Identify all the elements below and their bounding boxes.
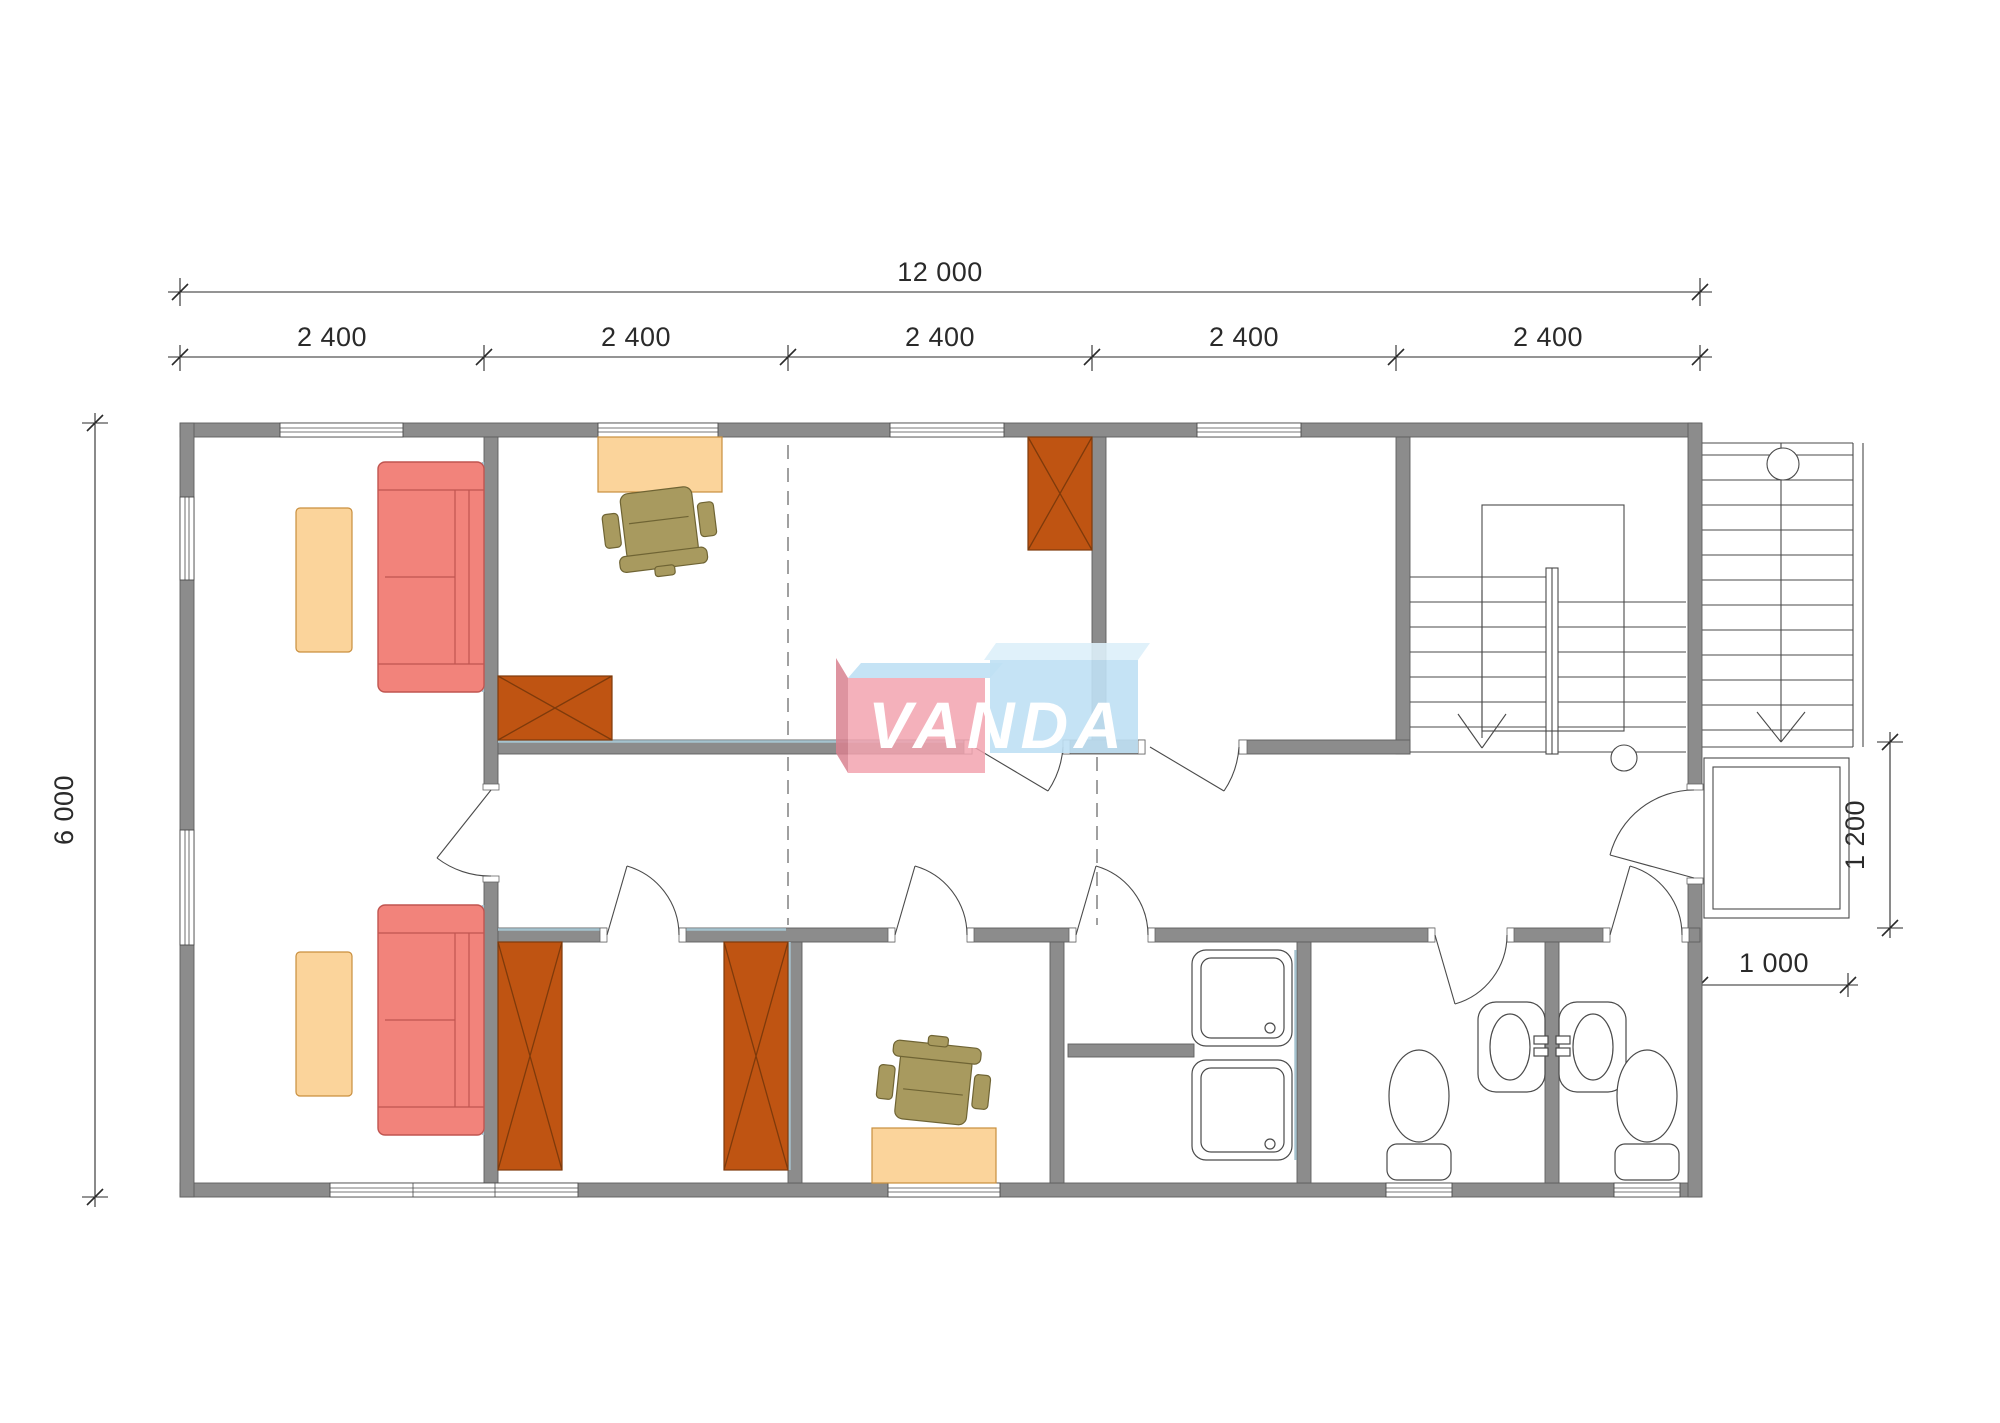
- wardrobe-office-right: [1028, 437, 1092, 550]
- sofa-lower: [378, 905, 484, 1135]
- stair-post-circle: [1767, 448, 1799, 480]
- wardrobe-bedroom1-left: [498, 942, 562, 1170]
- dim-module-5-label: 2 400: [1513, 322, 1583, 352]
- corridor-top-wall-right: [1239, 740, 1410, 754]
- stair-newel-circle: [1611, 745, 1637, 771]
- door-bedroom1: [607, 866, 679, 935]
- wall-bedroom2: [1050, 942, 1064, 1183]
- shower-tray-2: [1192, 1060, 1292, 1160]
- wardrobe-office-left: [498, 676, 612, 740]
- window-top-4: [1197, 423, 1301, 437]
- sofa-upper: [378, 462, 484, 692]
- sink-wc2: [1556, 1002, 1626, 1092]
- dimension-height: 6 000: [49, 413, 108, 1207]
- window-wc-1: [1386, 1183, 1452, 1197]
- window-top-3: [890, 423, 1004, 437]
- wall-shower-room: [1297, 942, 1311, 1183]
- dim-module-3-label: 2 400: [905, 322, 975, 352]
- window-left-2: [180, 830, 194, 945]
- window-top-2: [598, 423, 718, 437]
- interior-staircase: [1410, 505, 1686, 771]
- exterior-staircase: [1700, 443, 1863, 747]
- shower-tray-1: [1192, 950, 1292, 1046]
- dim-porch-width-label: 1 000: [1739, 948, 1809, 978]
- entry-porch: [1704, 758, 1849, 918]
- dimension-total-width: 12 000: [168, 257, 1712, 306]
- desk-bedroom2: [872, 1128, 996, 1183]
- vanda-watermark: VANDA: [836, 643, 1150, 773]
- dim-total-width-label: 12 000: [897, 257, 983, 287]
- dimension-modules: 2 400 2 400 2 400 2 400 2 400: [168, 322, 1712, 371]
- sink-wc1: [1478, 1002, 1548, 1092]
- toilet-wc2: [1615, 1050, 1679, 1180]
- door-wc2: [1610, 866, 1682, 935]
- window-bottom-1: [330, 1183, 578, 1197]
- logo-top-flap-right: [984, 643, 1150, 660]
- dim-module-1-label: 2 400: [297, 322, 367, 352]
- dim-module-2-label: 2 400: [601, 322, 671, 352]
- wall-wc-divider: [1545, 942, 1559, 1183]
- coffee-table-lower: [296, 952, 352, 1096]
- dim-porch-depth-label: 1 200: [1840, 800, 1870, 870]
- door-openings: [483, 790, 1703, 943]
- window-bottom-2: [888, 1183, 1000, 1197]
- dimension-porch-width: 1 000: [1692, 948, 1858, 997]
- wall-stair-hall: [1396, 437, 1410, 754]
- wall-accents: [483, 462, 1296, 1170]
- logo-top-flap-left: [848, 663, 1003, 678]
- watermark-text: VANDA: [868, 688, 1128, 762]
- wardrobe-bedroom1-right: [724, 942, 788, 1170]
- office-chair-top: [600, 483, 722, 582]
- dim-height-label: 6 000: [49, 775, 79, 845]
- door-room3: [1150, 747, 1239, 791]
- door-shower-room: [1076, 866, 1148, 935]
- office-chair-bottom: [874, 1030, 994, 1127]
- coffee-table-upper: [296, 508, 352, 652]
- floor-plan-canvas: 12 000 2 400 2 400 2 400 2 400 2 400 6 0…: [0, 0, 2000, 1423]
- window-left-1: [180, 497, 194, 580]
- dim-module-4-label: 2 400: [1209, 322, 1279, 352]
- door-jambs: [483, 740, 1703, 942]
- window-top-1: [280, 423, 403, 437]
- desk-office: [598, 437, 722, 492]
- logo-side-flap: [836, 658, 848, 773]
- doors: [437, 747, 1694, 1004]
- toilet-wc1: [1387, 1050, 1451, 1180]
- door-bedroom2: [895, 866, 967, 935]
- door-living-room: [437, 790, 491, 876]
- door-entry: [1610, 790, 1694, 878]
- window-wc-2: [1614, 1183, 1680, 1197]
- door-wc1: [1435, 935, 1507, 1004]
- shower-partition-stub: [1068, 1044, 1194, 1057]
